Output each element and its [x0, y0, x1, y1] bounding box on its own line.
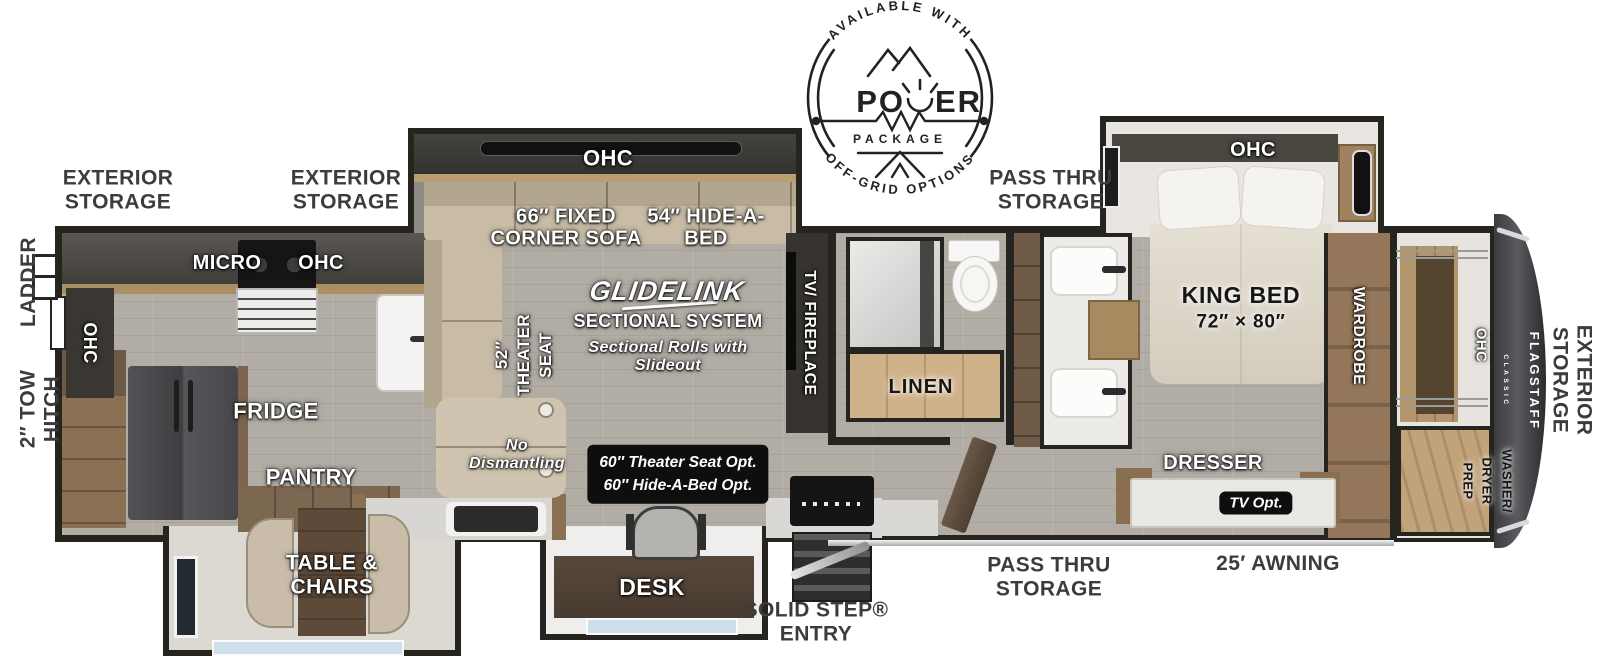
washer-dryer-closet — [1397, 426, 1493, 536]
badge-arc-top-text: AVAILABLE WITH — [825, 0, 976, 43]
label-exterior-storage-rear-left: EXTERIOR STORAGE — [63, 166, 174, 213]
power-right-text: ER — [935, 84, 982, 119]
faucet — [1102, 266, 1126, 273]
shelf-line — [1396, 405, 1488, 407]
desk-chair — [632, 506, 700, 560]
tv-screen — [786, 252, 796, 370]
pillow — [1156, 165, 1242, 231]
bathroom-wall — [1006, 233, 1014, 445]
closet-wall — [1390, 233, 1397, 538]
bedroom-slide-window-left — [1103, 146, 1120, 208]
cupholder — [538, 462, 554, 478]
entry-counter — [872, 500, 938, 536]
options-callout: 60″ Theater Seat Opt. 60″ Hide-A-Bed Opt… — [587, 445, 768, 504]
bathroom-wall — [828, 233, 836, 445]
dinette-window-bottom — [212, 640, 404, 656]
chair-arm-left — [626, 514, 634, 550]
island-sink-basin — [454, 506, 538, 532]
linen-closet — [846, 350, 1004, 422]
desk-surface — [554, 556, 754, 618]
pillow — [1240, 165, 1326, 231]
sofa-seat — [424, 206, 796, 244]
shelf-line — [1396, 398, 1488, 400]
dining-bench-left — [246, 518, 294, 628]
rear-window — [50, 296, 66, 350]
vanity-cabinet — [1088, 300, 1140, 360]
headboard — [1112, 134, 1338, 162]
refrigerator — [128, 366, 238, 520]
closet-shelf-interior — [1416, 256, 1454, 414]
desk-window — [586, 618, 738, 635]
dining-table — [298, 508, 366, 636]
awning-rail — [828, 540, 1394, 546]
tent-icon — [858, 152, 942, 177]
faucet — [1102, 388, 1126, 395]
living-slide-window — [480, 141, 742, 156]
sun-glyph — [903, 80, 937, 111]
shower-glass-panel — [920, 241, 934, 347]
sofa-corner-section — [424, 240, 502, 408]
kitchen-lower-cabinets — [62, 396, 126, 528]
counter-wood-cap — [552, 494, 566, 540]
cupholder — [538, 402, 554, 418]
label-exterior-storage-front: EXTERIOR STORAGE — [1548, 325, 1595, 436]
mountains-icon — [868, 48, 930, 76]
label-exterior-storage-rear-right: EXTERIOR STORAGE — [291, 166, 402, 213]
king-bed — [1150, 224, 1332, 384]
range-oven — [236, 288, 318, 334]
shelf-line — [1396, 250, 1488, 252]
tv-option-callout: TV Opt. — [1219, 492, 1292, 515]
bathroom-wall — [836, 437, 950, 445]
badge-arc-bottom-text: OFF-GRID OPTIONS — [822, 150, 978, 198]
hall-cabinet — [1014, 233, 1040, 447]
ladder-icon — [32, 254, 58, 300]
package-text: PACKAGE — [853, 132, 947, 146]
outdoor-griddle — [790, 476, 874, 526]
bedroom-slide-window-right — [1352, 150, 1372, 216]
power-package-badge: AVAILABLE WITH OFF-GRID OPTIONS PO ER PA… — [758, 0, 1042, 200]
dining-bench-right — [368, 514, 410, 634]
living-wood-shelf — [414, 174, 796, 182]
shelf-line — [1396, 257, 1488, 259]
stove-cooktop — [238, 240, 316, 290]
kitchen-ohc-cabinet — [66, 288, 114, 398]
dinette-window-left — [174, 556, 198, 638]
front-cap — [1494, 214, 1546, 548]
chair-arm-right — [698, 514, 706, 550]
label-pass-thru-bottom: PASS THRU STORAGE — [987, 553, 1110, 600]
toilet — [952, 256, 998, 312]
floorplan-canvas: AVAILABLE WITH OFF-GRID OPTIONS PO ER PA… — [0, 0, 1600, 663]
label-awning: 25′ AWNING — [1216, 552, 1340, 576]
